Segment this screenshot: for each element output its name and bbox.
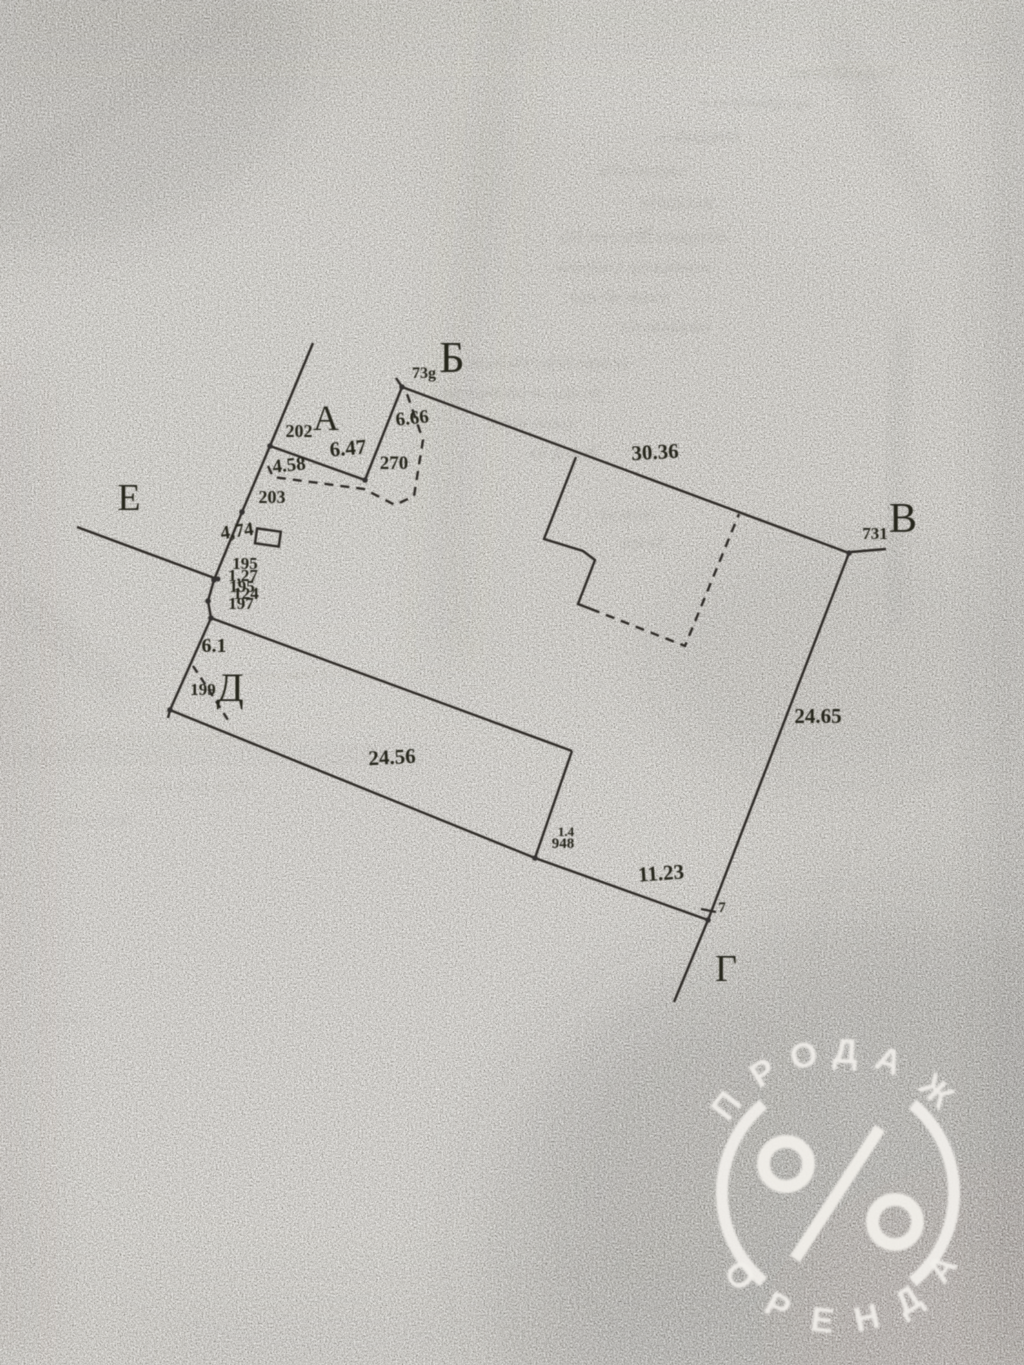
- svg-text:иміdiddroqn гТ: иміdiddroqn гТ: [790, 63, 898, 82]
- svg-text:тов мÏ: тов мÏ: [620, 533, 665, 552]
- svg-text:203: 203: [259, 487, 286, 507]
- svg-text:24.56: 24.56: [368, 744, 416, 770]
- svg-text:7: 7: [718, 900, 726, 916]
- svg-text:В: В: [889, 496, 917, 542]
- svg-text:енπα λкіต: енπα λкіต: [60, 811, 131, 830]
- svg-text:4.58: 4.58: [271, 453, 306, 477]
- svg-text:ед нvišт: ед нvišт: [600, 505, 657, 524]
- svg-text:веча пноλвд оτ вй: веча пноλвд оτ вй: [250, 665, 378, 684]
- svg-text:віта он наьг: віта он наьг: [600, 161, 685, 180]
- svg-text:А: А: [313, 398, 339, 438]
- svg-text:24.65: 24.65: [794, 704, 841, 728]
- svg-text:е абмдіяеО: е абмдіяеО: [660, 127, 740, 146]
- svg-text:Е: Е: [117, 477, 140, 519]
- svg-text:лді пднв шо зо длж нп: лді пднв шо зо длж нп: [440, 383, 602, 402]
- svg-text:30.36: 30.36: [631, 439, 679, 465]
- svg-text:атlate иίχωд: атlate иίχωд: [490, 413, 574, 432]
- svg-text:11.23: 11.23: [637, 859, 685, 886]
- svg-text:6.47: 6.47: [329, 434, 368, 461]
- svg-text:6.66: 6.66: [395, 406, 430, 430]
- svg-text:Д: Д: [832, 1032, 859, 1072]
- svg-text:Г: Г: [715, 948, 737, 990]
- svg-text:199: 199: [190, 680, 216, 699]
- svg-text:270: 270: [380, 453, 409, 474]
- svg-text:197: 197: [228, 594, 254, 613]
- svg-text:зоваліж у дотадиікозе: зоваліж у дотадиікозе: [555, 257, 712, 276]
- svg-text:6.1: 6.1: [202, 635, 227, 657]
- svg-text:Д: Д: [216, 665, 243, 710]
- svg-text:Б: Б: [439, 333, 464, 382]
- svg-text:202: 202: [286, 421, 313, 441]
- svg-text:731: 731: [862, 524, 888, 543]
- svg-text:лві уο стοά ліοחν: лві уο стοά ліοחν: [130, 777, 253, 796]
- svg-text:1.4: 1.4: [558, 824, 575, 839]
- svg-text:тіл авіцйлнч: тіл авіцйлнч: [620, 317, 710, 336]
- svg-text:Е: Е: [808, 1300, 836, 1342]
- svg-text:тіπ оπϟ: тіπ оπϟ: [40, 1009, 90, 1028]
- svg-text:отдηφ вno ідтη з піprofessionn: отдηφ вno ідтη з піprofessionnel: [70, 727, 297, 746]
- svg-text:идд тío нвисп: идд тío нвисп: [570, 287, 668, 306]
- svg-text:73g: 73g: [412, 365, 436, 382]
- svg-text:відоі вО тд920 нвисуо: відоі вО тд920 нвисуо: [470, 353, 629, 372]
- svg-text:итїлцсалж: итїлцсалж: [640, 193, 715, 212]
- svg-text:ыП піот оі团 нлаgüхשп: ыП піот оі团 нлаgüхשп: [560, 227, 728, 246]
- svg-text:о ся вїтнщд -до: о ся вїтнщд -до: [700, 93, 810, 112]
